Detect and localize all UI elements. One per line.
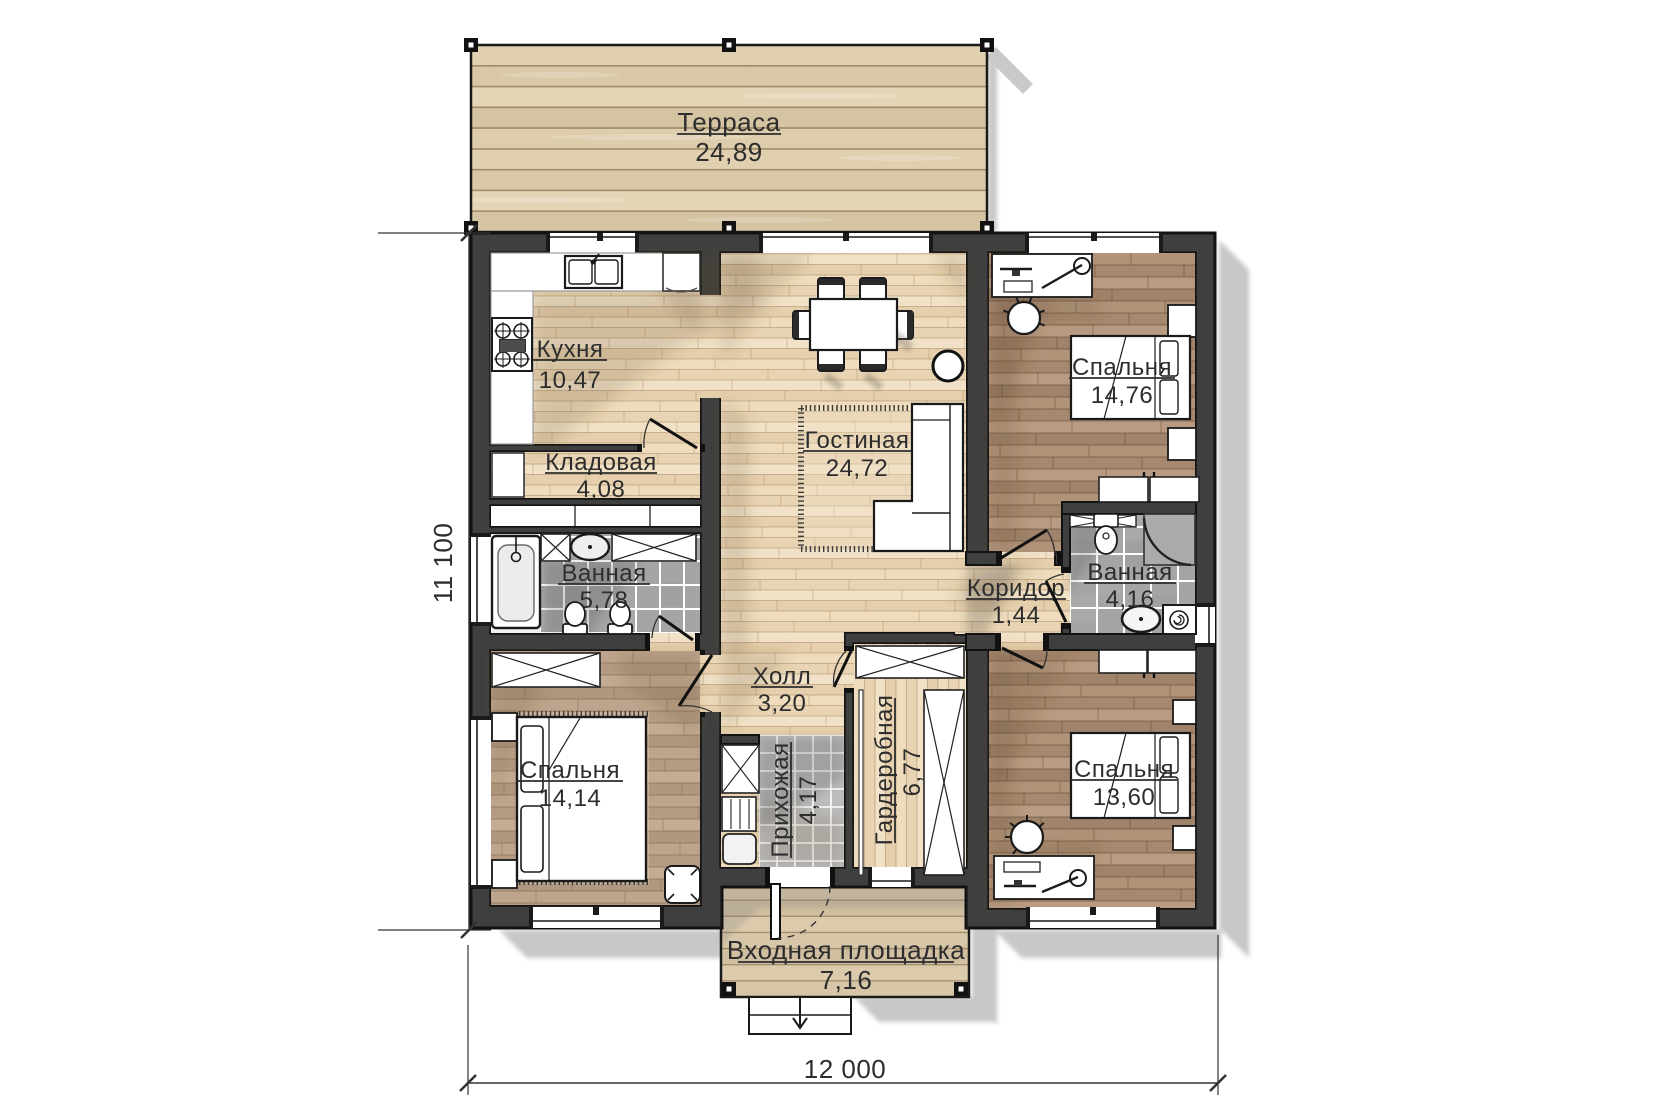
svg-text:Ванная: Ванная (561, 560, 646, 587)
svg-text:1,44: 1,44 (992, 602, 1041, 629)
svg-text:13,60: 13,60 (1093, 784, 1156, 811)
svg-text:7,16: 7,16 (820, 965, 873, 995)
svg-text:Входная площадка: Входная площадка (727, 935, 965, 965)
svg-text:Спальня: Спальня (1072, 354, 1172, 381)
svg-text:4,16: 4,16 (1106, 586, 1155, 613)
svg-text:12 000: 12 000 (804, 1054, 887, 1084)
svg-text:Гардеробная: Гардеробная (871, 695, 898, 846)
svg-text:14,76: 14,76 (1091, 382, 1154, 409)
svg-text:Спальня: Спальня (520, 757, 620, 784)
svg-text:Холл: Холл (753, 663, 812, 690)
svg-text:Кухня: Кухня (537, 336, 604, 363)
svg-text:3,20: 3,20 (758, 690, 807, 717)
svg-text:4,17: 4,17 (795, 776, 822, 825)
svg-text:5,78: 5,78 (580, 587, 629, 614)
svg-text:24,89: 24,89 (695, 137, 763, 167)
svg-text:4,08: 4,08 (577, 476, 626, 503)
svg-text:Кладовая: Кладовая (545, 449, 657, 476)
svg-text:Гостиная: Гостиная (805, 427, 910, 454)
svg-text:Спальня: Спальня (1074, 756, 1174, 783)
svg-text:Прихожая: Прихожая (767, 742, 794, 857)
svg-text:14,14: 14,14 (539, 785, 602, 812)
svg-text:Терраса: Терраса (677, 107, 780, 137)
svg-text:Ванная: Ванная (1087, 559, 1172, 586)
svg-text:10,47: 10,47 (539, 367, 602, 394)
svg-text:11 100: 11 100 (428, 523, 458, 604)
svg-text:24,72: 24,72 (826, 455, 889, 482)
svg-text:6,77: 6,77 (899, 748, 926, 797)
